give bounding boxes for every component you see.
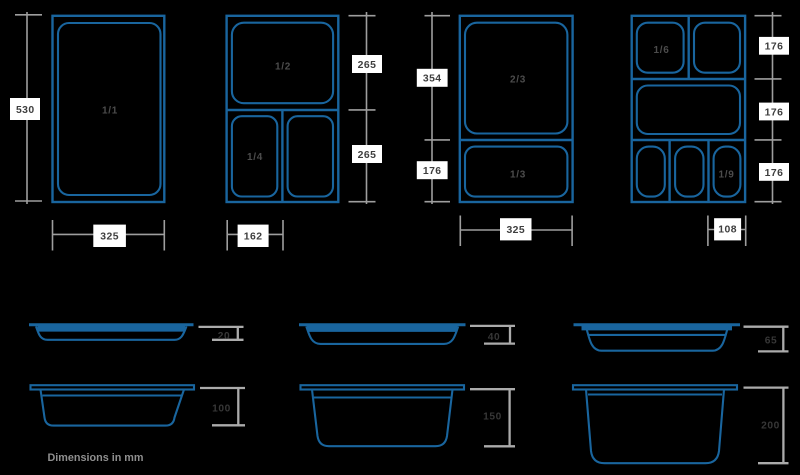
svg-text:530: 530 [16,105,35,116]
svg-text:1/1: 1/1 [102,106,118,117]
svg-text:40: 40 [488,332,501,343]
svg-text:20: 20 [218,331,231,342]
svg-text:Dimensions in mm: Dimensions in mm [48,452,144,464]
svg-text:2/3: 2/3 [510,75,526,86]
svg-text:150: 150 [483,412,502,423]
svg-text:325: 325 [100,232,119,243]
svg-text:108: 108 [718,225,737,236]
svg-text:65: 65 [765,335,778,346]
svg-text:354: 354 [423,74,442,85]
svg-text:176: 176 [765,42,784,53]
svg-text:176: 176 [765,168,784,179]
svg-text:100: 100 [212,404,231,415]
svg-text:176: 176 [423,166,442,177]
svg-text:265: 265 [358,60,377,71]
svg-text:1/4: 1/4 [247,152,263,163]
svg-text:265: 265 [358,150,377,161]
svg-text:1/6: 1/6 [653,45,669,56]
svg-text:1/2: 1/2 [275,62,291,73]
svg-text:325: 325 [506,225,525,236]
svg-text:200: 200 [761,421,780,432]
svg-text:1/3: 1/3 [510,170,526,181]
svg-text:1/9: 1/9 [718,170,734,181]
svg-text:176: 176 [765,107,784,118]
svg-text:162: 162 [244,232,263,243]
